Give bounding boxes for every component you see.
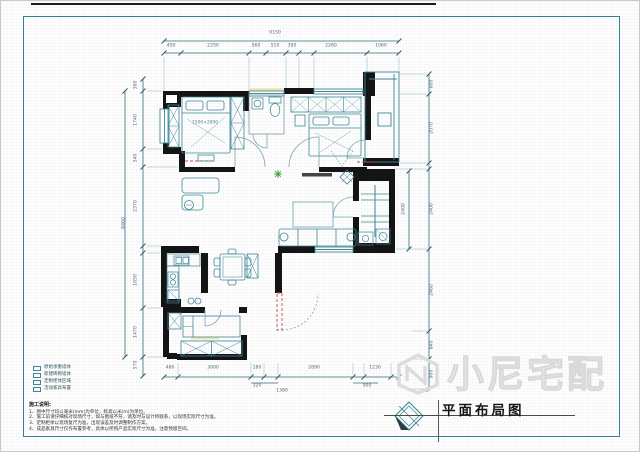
dim-label-left: 1740 bbox=[135, 114, 140, 126]
dim-label-right: 900 bbox=[431, 370, 436, 379]
dining-table-icon bbox=[214, 249, 251, 285]
rug-icon bbox=[293, 202, 333, 227]
legend-label: 活动家具布置 bbox=[44, 387, 71, 392]
nightstand2-icon bbox=[168, 313, 181, 329]
note-line: 2、施工前请仔细核对现场尺寸，如与图纸不符，请及时与设计师联系，以现场实际尺寸为… bbox=[29, 415, 251, 421]
door-frames-red bbox=[185, 161, 378, 330]
legend-label: 原始承重墙体 bbox=[44, 366, 71, 371]
bed-size-label: 1500×2000 bbox=[192, 121, 218, 126]
legend-label: 定制柜体区域 bbox=[44, 380, 71, 385]
wardrobe-master-icon bbox=[231, 97, 244, 149]
sofa-long-icon bbox=[279, 229, 356, 246]
legend-symbol-icon bbox=[33, 387, 41, 393]
drawing-title: 平面布局图 bbox=[442, 399, 525, 419]
door-arcs bbox=[205, 134, 365, 330]
dim-label-bottom: 3000 bbox=[207, 367, 219, 372]
stool-icon bbox=[188, 298, 194, 304]
tv-icon bbox=[302, 173, 332, 177]
legend-symbol-icon bbox=[33, 366, 41, 372]
dim-label-top: 2260 bbox=[325, 45, 337, 50]
accent-sills bbox=[191, 88, 283, 340]
legend-symbol-icon bbox=[33, 380, 41, 386]
construction-notes: 施工说明: 1、图中尺寸均以毫米(mm)为单位，标高以米(m)为单位。2、施工前… bbox=[29, 401, 251, 432]
dim-label-right: 840 bbox=[431, 341, 436, 350]
legend-item: 原始承重墙体 bbox=[33, 365, 71, 372]
cabinet-left-icon bbox=[168, 105, 179, 147]
legend-item: 定制柜体区域 bbox=[33, 379, 71, 386]
extension-lines bbox=[147, 57, 427, 389]
dim-label-left: 1470 bbox=[135, 326, 140, 338]
legend-label: 新建砖砌墙体 bbox=[44, 373, 71, 378]
notes-lines: 1、图中尺寸均以毫米(mm)为单位，标高以米(m)为单位。2、施工前请仔细核对现… bbox=[29, 410, 251, 433]
sofa-corner-icon bbox=[182, 178, 219, 210]
dim-label-right: 2400 bbox=[403, 203, 408, 215]
title-block: 平面布局图 bbox=[384, 396, 584, 446]
bathroom-fixtures bbox=[249, 94, 284, 134]
wardrobe-study-icon bbox=[181, 341, 242, 356]
dim-label-left: 360 bbox=[135, 81, 140, 90]
dim-label-top: 2250 bbox=[207, 45, 219, 50]
notes-heading: 施工说明: bbox=[29, 401, 251, 408]
dim-label-right: 2070 bbox=[431, 122, 436, 134]
legend: 原始承重墙体新建砖砌墙体定制柜体区域活动家具布置 bbox=[33, 365, 71, 393]
legend-item: 新建砖砌墙体 bbox=[33, 372, 71, 379]
kitchen-counter-icon bbox=[167, 254, 200, 303]
dim-label-right: 2400 bbox=[431, 203, 436, 215]
laundry-fixtures bbox=[358, 185, 390, 245]
dim-label-bottom: 900 bbox=[363, 385, 372, 390]
dim-label-left: 540 bbox=[135, 154, 140, 163]
dim-label-top: 560 bbox=[252, 45, 261, 50]
nightstand-icon bbox=[295, 115, 305, 126]
wall-column-core bbox=[166, 95, 177, 103]
bench-icon bbox=[198, 155, 214, 161]
dim-label-top: 510 bbox=[271, 45, 280, 50]
dim-label-bottom: 180 bbox=[253, 367, 262, 372]
dim-label-top: 390 bbox=[288, 45, 297, 50]
wardrobe-bedroom2-icon bbox=[291, 97, 361, 112]
plant-icon bbox=[274, 170, 282, 178]
dim-label-bottom: 480 bbox=[166, 367, 175, 372]
watermark-text: 小尼宅配 bbox=[447, 356, 607, 393]
dim-label-left: 1650 bbox=[135, 274, 140, 286]
dim-label-bottom: 1230 bbox=[369, 367, 381, 372]
dim-label-bottom: 2890 bbox=[308, 367, 320, 372]
dim-label-bottom: 320 bbox=[253, 385, 262, 390]
floor-drain-icon bbox=[340, 170, 354, 184]
dim-label-top: 1060 bbox=[375, 45, 387, 50]
cad-page: 小尼宅配 bbox=[0, 0, 640, 452]
legend-symbol-icon bbox=[33, 373, 41, 379]
title-vline bbox=[438, 400, 439, 442]
note-line: 4、成品家具尺寸仅作布置参考，具体以所购产品实际尺寸为准，注意预留空间。 bbox=[29, 427, 251, 433]
legend-item: 活动家具布置 bbox=[33, 386, 71, 393]
dim-label-left: 2370 bbox=[135, 200, 140, 212]
bed-study-icon bbox=[183, 316, 240, 337]
dim-label-left: 570 bbox=[135, 361, 140, 370]
dim-label-right: 600 bbox=[431, 80, 436, 89]
dim-label-left: 8460 bbox=[123, 217, 128, 229]
bed-bedroom2-icon bbox=[309, 114, 361, 156]
dim-label-bottom: 1380 bbox=[276, 390, 288, 395]
watermark: 小尼宅配 bbox=[395, 353, 607, 395]
dim-label-top: 450 bbox=[167, 45, 176, 50]
dim-label-right: 2460 bbox=[431, 284, 436, 296]
dim-label-top: 9150 bbox=[269, 32, 281, 37]
stool-icon-2 bbox=[195, 298, 201, 304]
